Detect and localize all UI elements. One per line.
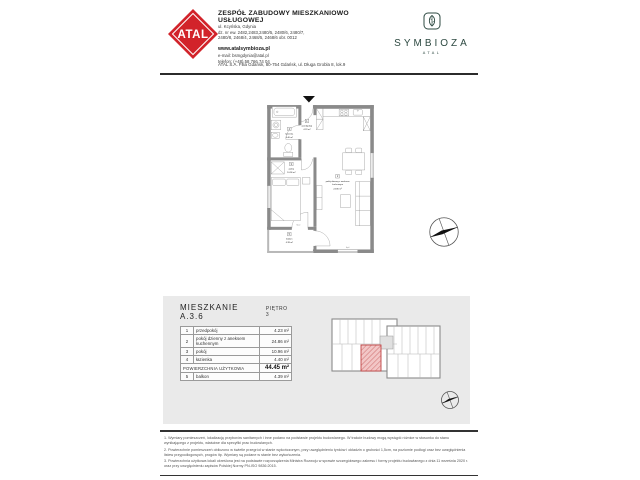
svg-text:4.40 m²: 4.40 m²: [286, 136, 293, 139]
room-name: pokój: [194, 348, 260, 356]
apartment-title-label: MIESZKANIE: [180, 303, 238, 312]
room-area: 10.96 m²: [260, 348, 292, 356]
svg-text:10.96 m²: 10.96 m²: [287, 171, 296, 174]
brand-name: SYMBIOZA: [388, 38, 476, 49]
svg-text:24.86 m²: 24.86 m²: [333, 187, 342, 190]
footer-divider-top: [160, 430, 478, 432]
building-overview-plan: [328, 314, 468, 414]
header-text-block: ZESPÓŁ ZABUDOWY MIESZKANIOWO USŁUGOWEJ u…: [218, 10, 388, 64]
disclaimer-item-2: 2. Powierzchnie pomieszczeń obliczono w …: [164, 448, 470, 459]
table-row: 3 pokój 10.96 m²: [181, 348, 292, 356]
entrance-arrow-icon: [303, 96, 315, 103]
label-bedroom: 3 pokój 10.96 m²: [287, 162, 296, 174]
room-area: 4.39 m²: [260, 373, 292, 381]
room-no: 3: [181, 348, 194, 356]
room-area: 24.86 m²: [260, 335, 292, 348]
legal-disclaimer: 1. Wymiary pomieszczeń, lokalizację przy…: [164, 436, 470, 471]
room-no: 4: [181, 356, 194, 364]
svg-text:4.39 m²: 4.39 m²: [286, 241, 293, 244]
atal-logo-text: ATAL: [178, 29, 209, 41]
room-no: 1: [181, 327, 194, 335]
north-compass-icon: [424, 212, 464, 252]
apartment-floor-label: PIĘTRO 3: [266, 306, 292, 318]
label-bathroom: 4 łazienka 4.40 m²: [285, 127, 294, 139]
bedroom-furniture: [271, 162, 310, 221]
svg-text:kuchennym: kuchennym: [332, 184, 343, 186]
brand-subtitle: ATAL: [388, 51, 476, 55]
room-no: 5: [181, 373, 194, 381]
mini-compass-icon: [439, 389, 461, 411]
room-area: 4.23 m²: [260, 327, 292, 335]
room-name: balkon: [194, 373, 260, 381]
bathroom-fixtures: [271, 107, 296, 157]
svg-text:przedpokój: przedpokój: [302, 125, 313, 127]
footer-divider-bottom: [160, 475, 478, 476]
label-balcony: 5 balkon 4.39 m²: [286, 232, 294, 244]
branch-address: ATAL S.A. Filia Gdańsk, 80-754 Gdańsk, u…: [218, 62, 345, 67]
apartment-title: MIESZKANIE A.3.6: [180, 303, 266, 321]
room-area: 4.40 m²: [260, 356, 292, 364]
symbioza-leaf-icon: [423, 12, 441, 30]
svg-text:pokój: pokój: [289, 168, 295, 170]
kitchen-fixtures: [316, 109, 370, 131]
svg-text:4.23 m²: 4.23 m²: [303, 128, 310, 131]
label-hall: 1 przedpokój 4.23 m²: [302, 119, 313, 131]
room-name: przedpokój: [194, 327, 260, 335]
table-row: 2 pokój dzienny z aneksem kuchennym 24.8…: [181, 335, 292, 348]
dining-table-set: [343, 148, 365, 175]
apartment-summary: MIESZKANIE A.3.6 PIĘTRO 3 1 przedpokój 4…: [180, 303, 292, 381]
header-divider: [160, 73, 478, 75]
total-row: POWIERZCHNIA UŻYTKOWA 44.45 m²: [181, 364, 292, 373]
disclaimer-item-3: 3. Powierzchnia użytkowa lokali określon…: [164, 459, 470, 470]
svg-text:Hp=0: Hp=0: [346, 247, 350, 249]
room-name: łazienka: [194, 356, 260, 364]
label-living-room: 2 pokój dzienny z aneksem kuchennym 24.8…: [326, 174, 350, 190]
room-name: pokój dzienny z aneksem kuchennym: [194, 335, 260, 348]
table-row: 4 łazienka 4.40 m²: [181, 356, 292, 364]
brochure-page: ATAL ZESPÓŁ ZABUDOWY MIESZKANIOWO USŁUGO…: [0, 0, 640, 480]
plan-annotations: Hp=0 Hp=0: [297, 225, 350, 250]
website-text: www.atalsymbioza.pl: [218, 46, 388, 52]
table-row: 5 balkon 4.39 m²: [181, 373, 292, 381]
highlighted-unit: [361, 345, 381, 371]
apartment-unit-number: A.3.6: [180, 312, 204, 321]
svg-text:łazienka: łazienka: [285, 133, 294, 135]
project-title: ZESPÓŁ ZABUDOWY MIESZKANIOWO USŁUGOWEJ: [218, 10, 388, 24]
room-no: 2: [181, 335, 194, 348]
svg-text:Hp=0: Hp=0: [297, 225, 301, 227]
plots-line-2: 2480/8, 2468/4, 2468/5, 2468/6 obr. 0012: [218, 35, 388, 41]
room-area-table: 1 przedpokój 4.23 m² 2 pokój dzienny z a…: [180, 326, 292, 381]
apartment-title-row: MIESZKANIE A.3.6 PIĘTRO 3: [180, 303, 292, 321]
apartment-floor-plan: 4 łazienka 4.40 m² 1 przedpokój 4.23 m² …: [267, 95, 374, 256]
svg-text:balkon: balkon: [286, 239, 293, 241]
atal-logo-icon: ATAL: [166, 7, 220, 61]
table-row: 1 przedpokój 4.23 m²: [181, 327, 292, 335]
stair-core: [380, 336, 393, 349]
total-label: POWIERZCHNIA UŻYTKOWA: [181, 364, 260, 373]
svg-text:pokój dzienny z aneksem: pokój dzienny z aneksem: [326, 181, 350, 183]
living-room-furniture: [316, 182, 370, 226]
symbioza-brand-block: SYMBIOZA ATAL: [388, 12, 476, 55]
disclaimer-item-1: 1. Wymiary pomieszczeń, lokalizację przy…: [164, 436, 470, 447]
total-area: 44.45 m²: [260, 364, 292, 373]
